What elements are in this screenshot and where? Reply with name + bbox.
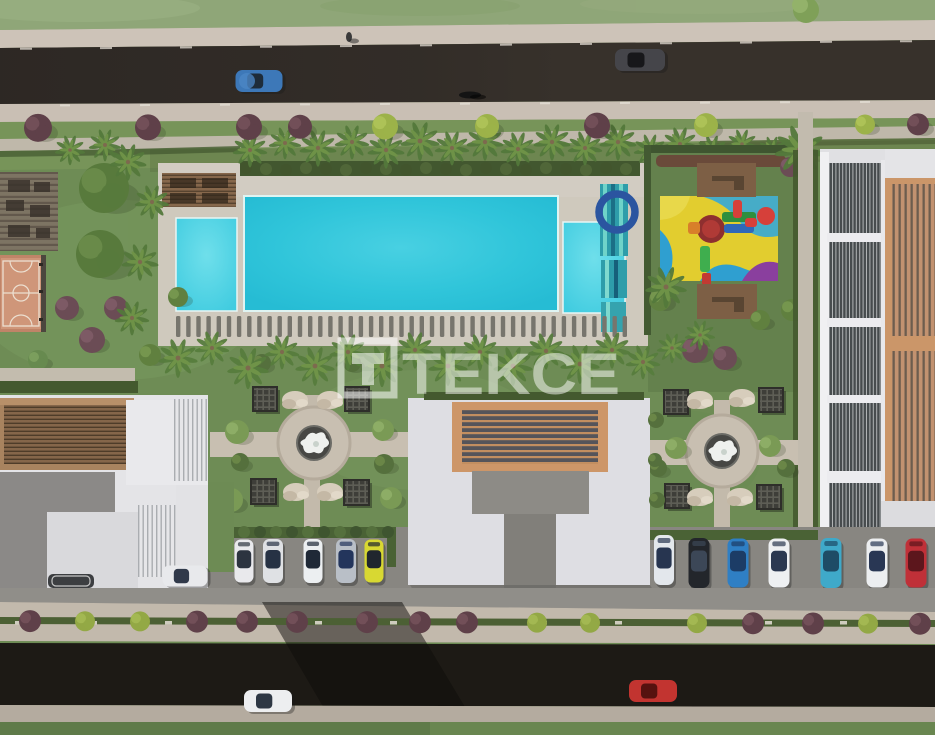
svg-text:TEKCE: TEKCE — [402, 342, 620, 407]
